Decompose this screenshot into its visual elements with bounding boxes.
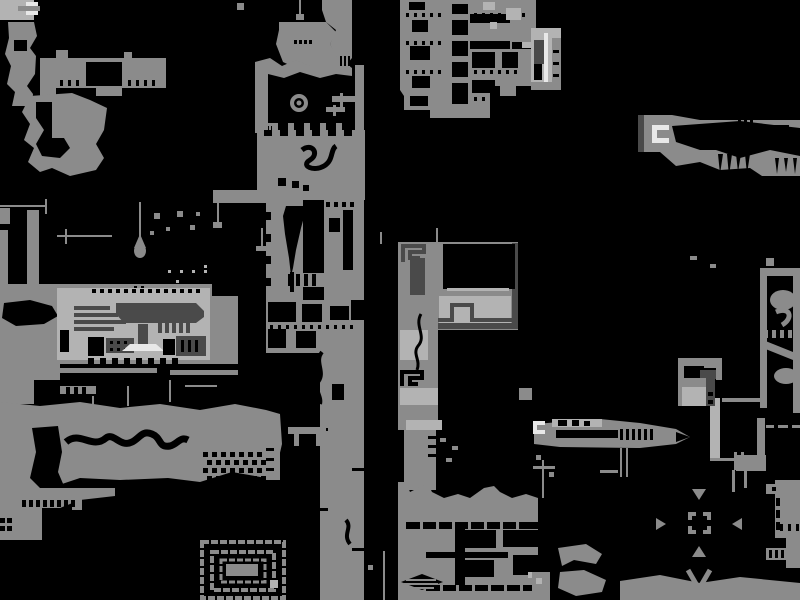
room-top-ticks (172, 289, 176, 293)
terrain-bumps (288, 123, 294, 130)
terrain-bumps (320, 123, 326, 130)
bc-bar-gaps (500, 522, 503, 529)
col-comb (764, 330, 768, 338)
col-blob (774, 368, 798, 384)
pole (744, 470, 747, 488)
scallop-notches (112, 358, 118, 366)
maze-ticks (430, 70, 433, 74)
tick-row (60, 80, 63, 86)
band-comb (738, 120, 741, 126)
comb-slits (769, 550, 772, 558)
chimney-slits (348, 56, 350, 66)
eye-terrain (257, 130, 365, 200)
teardrop (134, 244, 146, 258)
side-chip (519, 388, 532, 400)
platform-comb (644, 429, 647, 440)
maze-ticks (482, 70, 485, 74)
dotted-texture (239, 468, 244, 473)
crenellation (280, 130, 288, 136)
t-platform-leg (294, 434, 299, 446)
bc-bar-gaps (456, 585, 459, 591)
room-top-ticks (180, 289, 184, 293)
maze-ticks (490, 13, 493, 17)
maze-ticks (482, 97, 485, 101)
bl-tick-row (43, 500, 47, 507)
tick-row (68, 80, 71, 86)
terrain-hole (303, 185, 309, 191)
tick-row (278, 325, 281, 329)
bc-bar-gaps (472, 585, 475, 591)
eye-right-wall (355, 65, 364, 137)
chimney (124, 52, 132, 58)
shaft-rungs (452, 56, 468, 62)
maze-ticks (438, 70, 441, 74)
h-tick (766, 425, 774, 428)
fortress-hole (534, 64, 542, 80)
tick-row (294, 325, 297, 329)
pole (710, 458, 730, 461)
fortress-panel (534, 40, 544, 64)
debris (213, 222, 222, 228)
room-stripe (74, 306, 110, 310)
compass-bracket (688, 526, 692, 534)
edge-ticks (266, 448, 274, 451)
debris (549, 472, 554, 477)
stem-ticks (428, 445, 436, 448)
crenellation (264, 130, 272, 136)
edge-notches (266, 212, 271, 220)
maze-ticks (490, 70, 493, 74)
bc-shaft (455, 528, 465, 590)
room-top-ticks (196, 289, 200, 293)
console-dots (110, 341, 113, 344)
room-top-ticks (108, 289, 112, 293)
frame-leg (783, 136, 785, 142)
room-slab (116, 303, 204, 323)
right-col-frame (793, 268, 800, 413)
p-room-hole (443, 244, 515, 289)
tick-row (136, 80, 139, 86)
maze-ticks (430, 13, 433, 17)
wall-chip (766, 484, 788, 494)
wall-ticks (780, 524, 783, 531)
bl-dot-pairs (7, 526, 12, 531)
small-room-ticks (708, 392, 713, 396)
dark-room-top (722, 398, 760, 402)
tick-row (152, 80, 155, 86)
bridge-slits (296, 274, 300, 286)
bc-bar-gaps (420, 522, 423, 529)
speckle (176, 280, 179, 283)
left-strip (0, 230, 8, 290)
maze-ticks (474, 13, 477, 17)
debris (452, 446, 458, 450)
speckle-dots (180, 270, 183, 273)
light-chip (522, 42, 532, 48)
light-chip (270, 580, 278, 588)
room-top-ticks (132, 289, 136, 293)
scallop-notches (172, 358, 178, 366)
window-hole (330, 306, 349, 320)
bl-tick-row (57, 500, 61, 507)
dark-room-floor (736, 455, 766, 471)
maze-ticks (498, 13, 501, 17)
compass-bracket (688, 512, 692, 520)
slab-teeth (186, 323, 190, 333)
wall-ticks (796, 524, 799, 531)
bc-bar-gaps (468, 522, 471, 529)
game-map-viewport[interactable] (0, 0, 800, 600)
shaft-rungs (452, 77, 468, 83)
cone-stripe (404, 583, 438, 585)
tick-row (270, 325, 273, 329)
shaft-rungs (452, 35, 468, 41)
debris (446, 458, 452, 462)
eye-bar (332, 96, 356, 102)
tick-row (326, 202, 330, 207)
maze-ticks (506, 70, 509, 74)
dotted-texture (212, 468, 217, 473)
dotted-texture (230, 468, 235, 473)
band-shade (638, 115, 644, 152)
edge-ticks (266, 458, 274, 461)
cone-stripe (408, 587, 434, 589)
dotted-texture (225, 460, 230, 465)
eye-left-wall (255, 63, 268, 133)
bl-tick-row (71, 500, 75, 507)
wave-blob (558, 570, 606, 596)
maze-hole (409, 2, 425, 10)
left-strip (0, 208, 10, 224)
platform-window (572, 420, 579, 426)
maze-leg (500, 86, 516, 96)
bc-bar-gaps (452, 522, 455, 529)
maze-hole (470, 41, 510, 49)
dotted-texture (261, 476, 266, 481)
maze-ticks (522, 13, 525, 17)
scallop-notches (148, 358, 154, 366)
column-tick (352, 548, 364, 551)
bc-window (464, 560, 494, 577)
light-chip (536, 578, 542, 584)
cabinet-slits (181, 340, 184, 352)
funnel-tail (290, 272, 294, 292)
white-bracket (652, 125, 657, 143)
bc-bar-gaps (484, 522, 487, 529)
slab-teeth (172, 323, 176, 333)
terrain-bumps (272, 123, 278, 130)
maze-ticks (406, 41, 409, 45)
room-top-ticks (164, 289, 168, 293)
platform-comb (638, 429, 641, 440)
compass-left-arrow (656, 518, 666, 530)
game-map-canvas[interactable] (0, 0, 800, 600)
left-blob-hole (14, 40, 27, 51)
bl-dot-pairs (0, 518, 5, 523)
tick-row (334, 202, 338, 207)
corner-block (532, 572, 550, 600)
dotted-texture (207, 476, 212, 481)
debris (536, 455, 541, 460)
comb-slits (781, 550, 784, 558)
bl-hole (30, 426, 64, 492)
maze-ticks (482, 13, 485, 17)
maze-ticks (498, 70, 501, 74)
scallop-notches (88, 358, 94, 366)
dotted-texture (257, 468, 262, 473)
band-comb (744, 120, 747, 126)
debris (710, 264, 716, 268)
maze-ticks (514, 70, 517, 74)
pole (533, 466, 555, 469)
bl-tick-row (64, 500, 68, 507)
wall-slits (776, 510, 780, 518)
platform-slot (556, 430, 618, 438)
p-room-shelf (447, 288, 509, 291)
bl-tick-row (22, 500, 26, 507)
crenellation (344, 130, 352, 136)
speckle-dots (192, 270, 195, 273)
tick-row (286, 325, 289, 329)
maze-hole (412, 20, 428, 32)
terrain-bumps (336, 123, 342, 130)
tick-row (326, 325, 329, 329)
crenellation (312, 130, 320, 136)
room-top-ticks (124, 289, 128, 293)
room-top-ticks (100, 289, 104, 293)
cabinet-slits (188, 340, 191, 352)
console-dots (117, 341, 120, 344)
comb-slits (74, 387, 78, 394)
window-hole (351, 300, 364, 320)
col-comb (780, 330, 784, 338)
dotted-texture (221, 452, 226, 457)
tick-row (318, 325, 321, 329)
pole (732, 470, 735, 492)
dotted-texture (243, 476, 248, 481)
left-strip (27, 210, 39, 286)
dotted-texture (207, 460, 212, 465)
light-chip (490, 22, 497, 29)
wall-ticks (788, 524, 791, 531)
dotted-texture (203, 468, 208, 473)
debris (690, 256, 697, 260)
room-block (88, 337, 104, 356)
left-blob (5, 22, 37, 106)
t-platform-leg (316, 434, 321, 446)
dotted-texture (252, 476, 257, 481)
bl-tick-row (36, 500, 40, 507)
maze-ticks (438, 13, 441, 17)
fortress-ticks (553, 74, 559, 77)
bl-dot-pairs (0, 526, 5, 531)
bc-bar-gaps (488, 585, 491, 591)
scallop-notches (136, 358, 142, 366)
console-dots (124, 341, 127, 344)
terrain-bumps (304, 123, 310, 130)
eye-pupil (297, 101, 302, 106)
col-comb (772, 330, 776, 338)
room-hole (60, 330, 69, 352)
h-tick (792, 425, 800, 428)
light-chip (483, 2, 495, 10)
compass-down-arrow (692, 489, 706, 500)
tick-row (302, 325, 305, 329)
tick-row (350, 325, 353, 329)
small-room-fill (684, 378, 706, 388)
spiral-center (226, 564, 258, 576)
top-band-hole (86, 62, 122, 86)
stem-light-band (406, 420, 442, 430)
platform-comb (620, 429, 623, 440)
dotted-texture (225, 476, 230, 481)
wave-blob (558, 544, 602, 566)
dark-room-left (710, 398, 720, 458)
dotted-texture (216, 476, 221, 481)
shaft-rungs (452, 14, 468, 20)
debris (150, 231, 154, 235)
comb-slits (82, 387, 86, 394)
eye-bar-tick (333, 105, 336, 116)
tick-row (310, 325, 313, 329)
bc-bar-gaps (520, 585, 523, 591)
stem-light (400, 330, 428, 360)
wall-slits (776, 498, 780, 506)
speckle (204, 265, 207, 268)
maze-ticks (414, 70, 417, 74)
col-comb (788, 330, 792, 338)
maze-ticks (406, 70, 409, 74)
crenellation (328, 130, 336, 136)
small-room-light (682, 387, 706, 406)
p-room-slab (410, 258, 425, 295)
h-tick (778, 425, 788, 428)
tick-row (350, 202, 354, 207)
maze-hole (410, 46, 430, 60)
crenellation (296, 130, 304, 136)
maze-ticks (474, 70, 477, 74)
dotted-texture (261, 460, 266, 465)
bl-tick-row (29, 500, 33, 507)
small-room-wall (716, 358, 722, 380)
fortress-strip (544, 33, 548, 83)
platform-comb (632, 429, 635, 440)
dotted-texture (243, 460, 248, 465)
window-hole (268, 329, 286, 348)
wall-slits (776, 522, 780, 530)
maze-ticks (438, 41, 441, 45)
col-nub (766, 258, 774, 266)
small-room-ticks (708, 400, 713, 404)
console-dots (117, 348, 120, 351)
dark-room-right (757, 418, 765, 458)
terrain-hole (278, 178, 286, 186)
edge-notches (266, 234, 271, 242)
comb-slits (66, 387, 70, 394)
col-window (329, 218, 340, 232)
fortress-ticks (553, 62, 559, 65)
comb-slits (775, 550, 778, 558)
stem-ticks (428, 454, 436, 457)
wing-dots (299, 40, 302, 44)
dotted-texture (216, 460, 221, 465)
bc-bar-gaps (504, 585, 507, 591)
room-stripe (74, 327, 114, 331)
col-diagonal (763, 340, 793, 360)
wing-dots (309, 40, 312, 44)
white-bracket (533, 421, 537, 434)
room-top-ticks (140, 289, 144, 293)
room-top-ticks (148, 289, 152, 293)
room-top-ticks (188, 289, 192, 293)
compass-bracket (707, 512, 711, 520)
bc-bar (426, 552, 508, 558)
t-platform (288, 427, 326, 434)
wall-chip-hole (772, 487, 776, 491)
slab-teeth (165, 323, 169, 333)
chimney-slits (344, 56, 346, 66)
p-room-edge (438, 323, 518, 329)
debris (296, 14, 304, 20)
window-hole (296, 331, 316, 348)
cone-stripe (406, 579, 436, 581)
light-chip (506, 8, 521, 20)
maze-ticks (474, 97, 477, 101)
dotted-texture (203, 452, 208, 457)
chimney-slits (340, 56, 342, 66)
dotted-texture (212, 452, 217, 457)
bl-block (0, 498, 42, 540)
tick-row (144, 80, 147, 86)
bc-bar-gaps (440, 585, 443, 591)
stem-light (400, 388, 438, 405)
room-top-ticks (116, 289, 120, 293)
column-tick (352, 468, 364, 471)
dotted-texture (257, 452, 262, 457)
debris (196, 212, 200, 216)
ledge (57, 368, 157, 373)
slab-teeth (179, 323, 183, 333)
compass-right-arrow (732, 518, 742, 530)
tick-row (334, 325, 337, 329)
maze-ticks (422, 13, 425, 17)
bridge-slits (304, 274, 308, 286)
col-blob (770, 290, 796, 310)
dotted-texture (248, 468, 253, 473)
maze-ticks (414, 13, 417, 17)
debris (154, 213, 160, 219)
edge-notches (266, 278, 271, 286)
debris (440, 438, 446, 442)
platform-window (584, 421, 590, 426)
col-curl (776, 310, 789, 325)
dotted-texture (234, 460, 239, 465)
platform-comb (626, 429, 629, 440)
bc-window (503, 530, 538, 547)
chimney (56, 50, 68, 58)
right-col-frame (760, 268, 800, 276)
console-dots (110, 348, 113, 351)
window-hole (268, 302, 296, 322)
maze-ticks (406, 13, 409, 17)
room-top-ticks (92, 289, 96, 293)
maze-hole (472, 52, 495, 68)
pole (600, 470, 618, 473)
terrain-hole (292, 181, 299, 188)
tick-row (342, 325, 345, 329)
tick-row (342, 202, 346, 207)
eye-bar-tick (340, 93, 343, 107)
